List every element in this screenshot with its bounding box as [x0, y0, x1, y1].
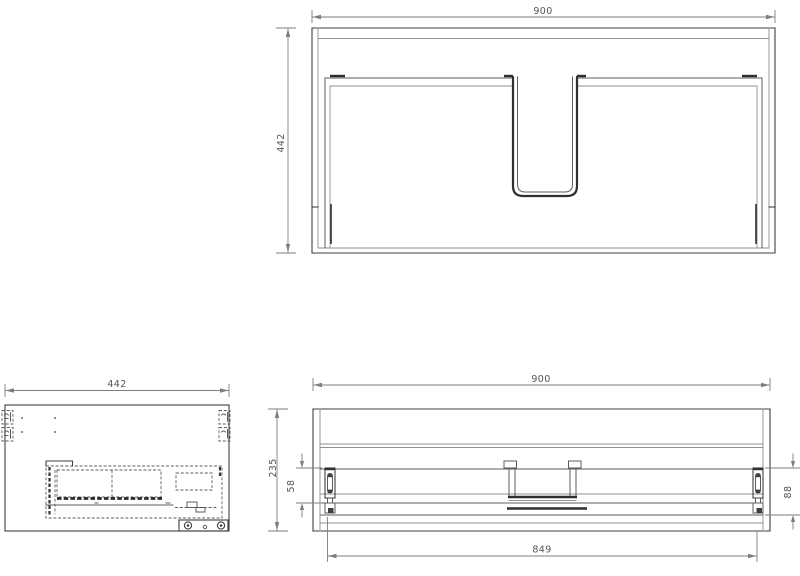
hanging-bracket-right: [753, 468, 763, 513]
dim-label-front-width: 900: [533, 6, 552, 17]
dim-front-width: 900: [312, 6, 775, 23]
drain-recess: [504, 461, 587, 509]
drawer-front-lines: [325, 76, 762, 248]
front-elevation-view: 900 442: [276, 6, 775, 253]
side-view: 442: [2, 379, 230, 531]
dim-label-bracket-left: 58: [286, 480, 297, 493]
rear-view: 900 235: [268, 374, 800, 562]
dim-label-bracket-right: 88: [783, 486, 794, 499]
dim-label-rear-width: 900: [531, 374, 550, 385]
sink-cutout-outline: [513, 77, 577, 196]
wall-bracket-marks: [2, 411, 230, 442]
dim-side-depth: 442: [5, 379, 229, 397]
dim-rear-width: 900: [313, 374, 770, 391]
dim-label-inner-width: 849: [532, 545, 551, 556]
dim-label-rear-height: 235: [268, 458, 279, 477]
technical-drawing-canvas: 900 442: [0, 0, 800, 576]
dim-bracket-left: 58: [286, 454, 322, 518]
dim-rear-height: 235: [268, 409, 288, 531]
slide-detail: [46, 461, 205, 512]
cabinet-rear-outline: [313, 409, 770, 531]
mounting-plate: [179, 520, 228, 531]
dim-label-side-depth: 442: [107, 379, 126, 390]
dim-front-height: 442: [276, 28, 296, 253]
cabinet-side-outline: [5, 405, 229, 531]
dim-inner-width: 849: [328, 517, 758, 562]
technical-drawing-page: 900 442: [0, 0, 800, 576]
hanging-bracket-left: [325, 468, 335, 513]
dim-label-front-height: 442: [276, 133, 287, 152]
cabinet-front-outline: [312, 28, 775, 253]
